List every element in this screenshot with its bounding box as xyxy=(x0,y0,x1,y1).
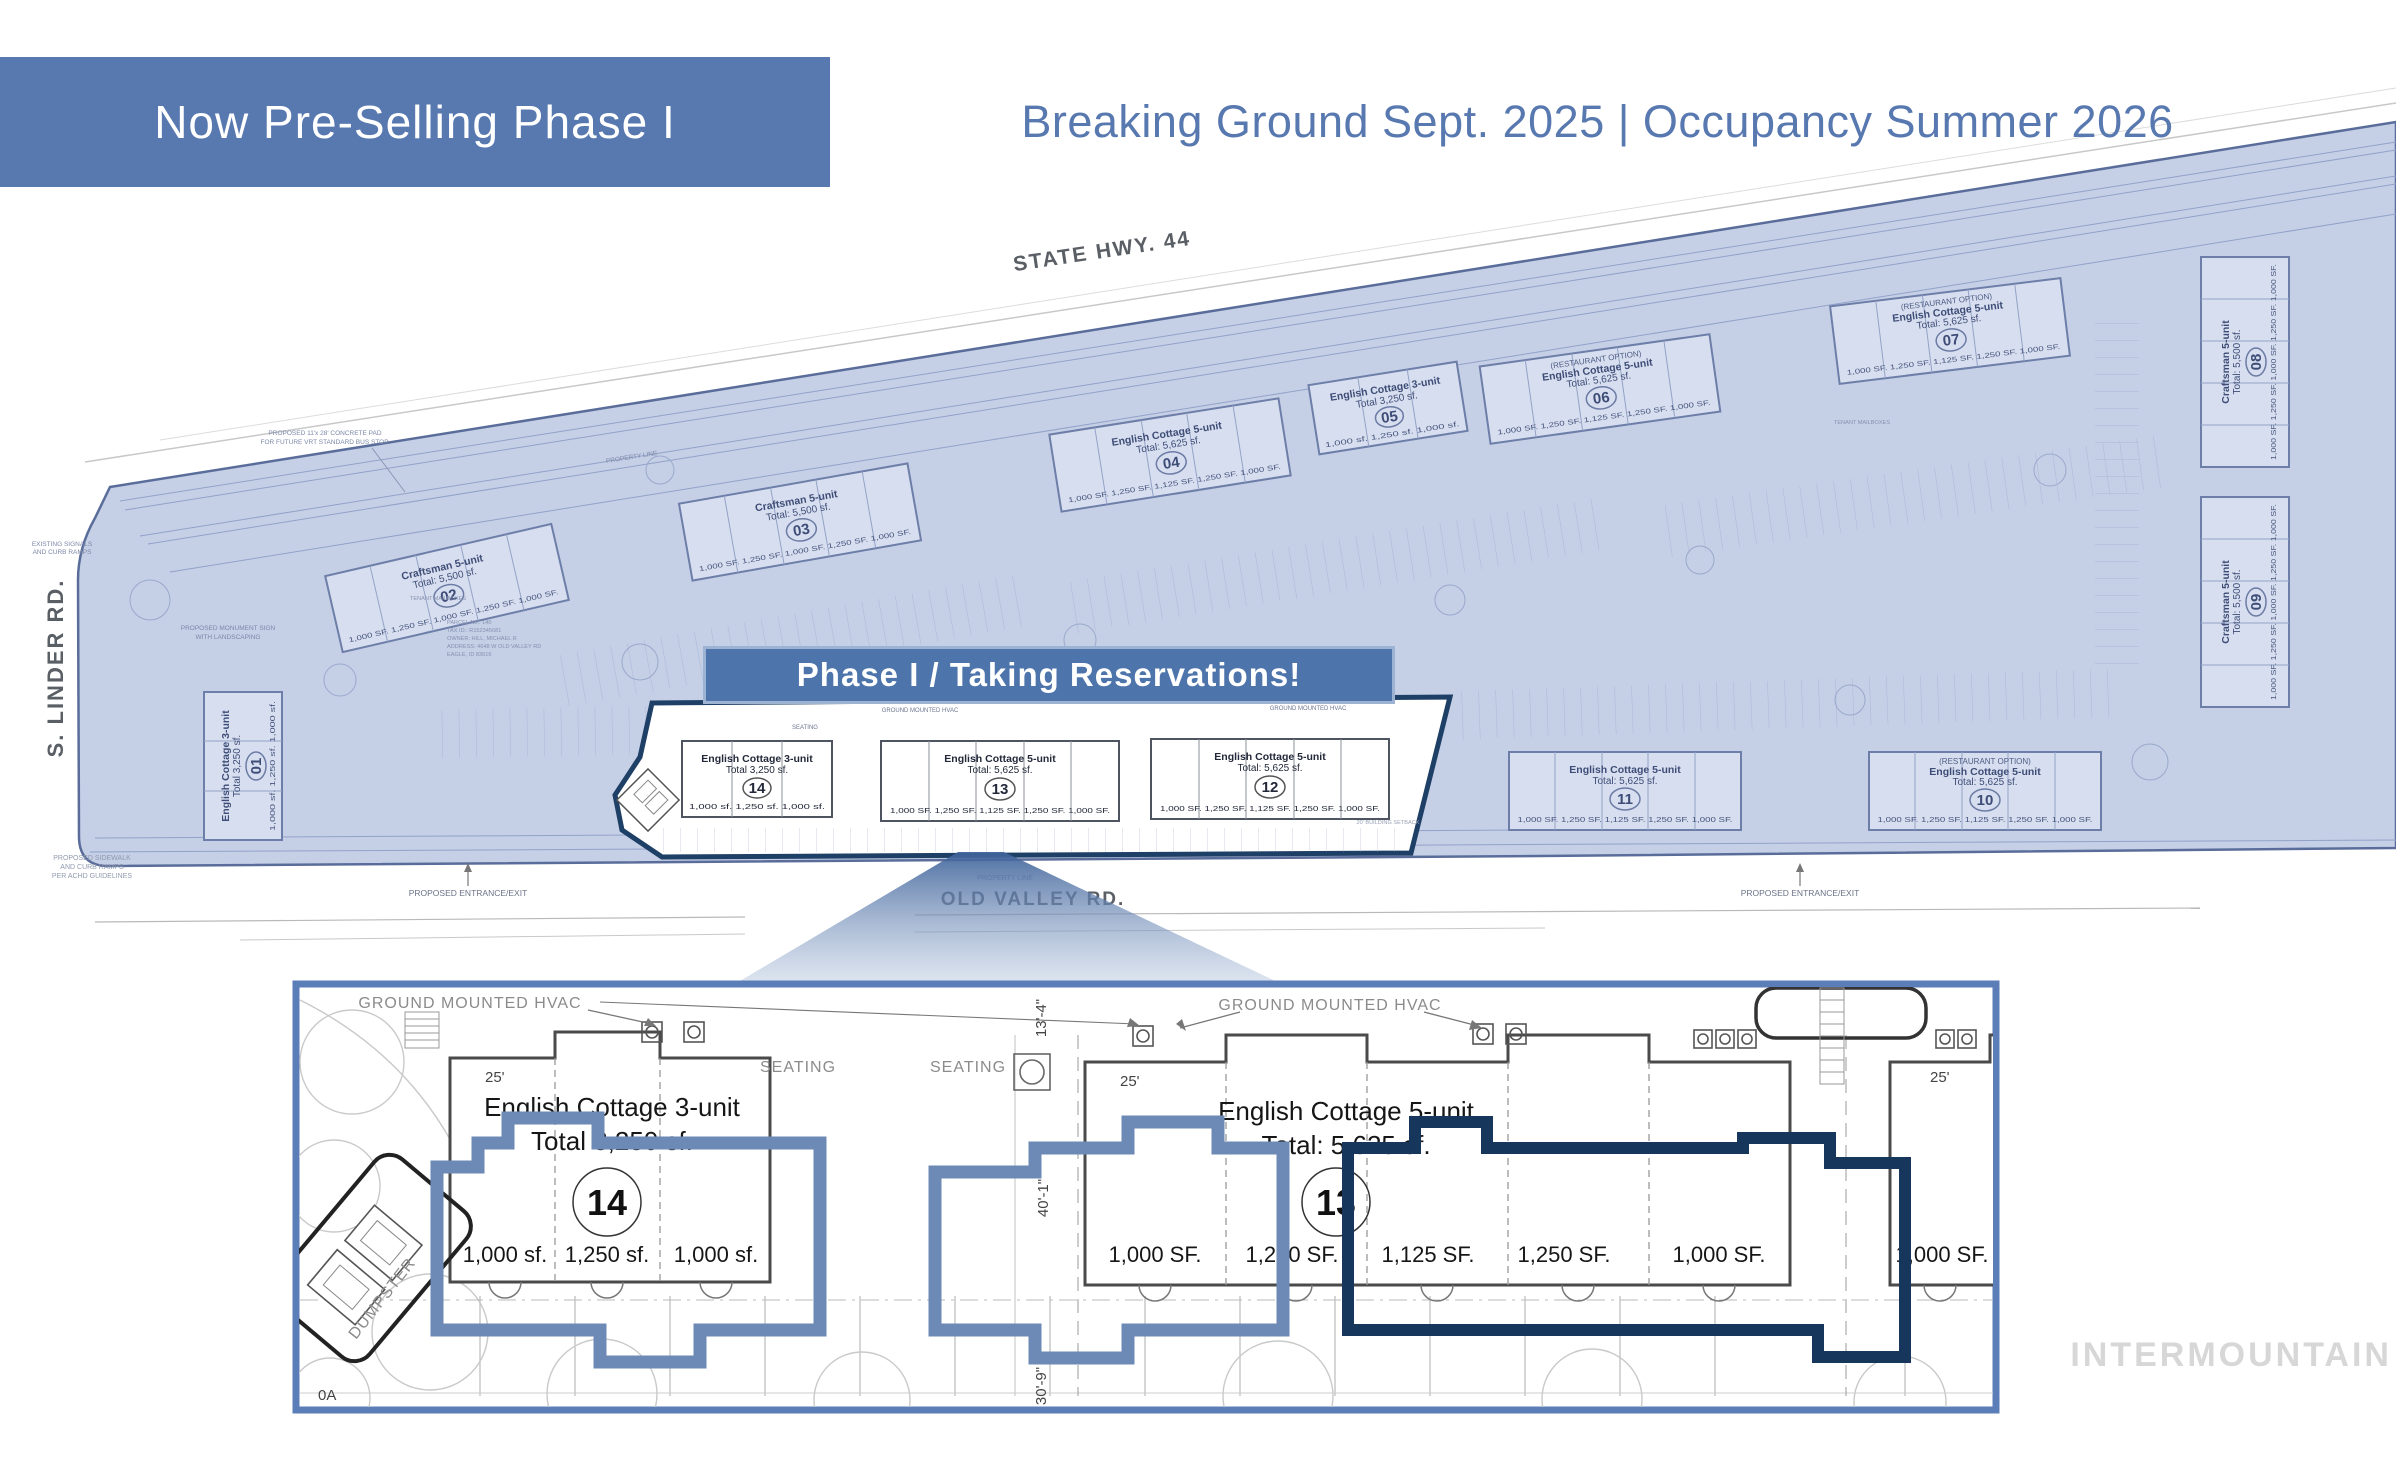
svg-text:1,000 SF.: 1,000 SF. xyxy=(1109,1242,1202,1267)
watermark: INTERMOUNTAIN xyxy=(2070,1336,2392,1374)
svg-text:EXISTING SIGNALS: EXISTING SIGNALS xyxy=(32,541,93,548)
svg-text:OWNER: HILL, MICHAEL R: OWNER: HILL, MICHAEL R xyxy=(447,636,517,642)
building-12: English Cottage 5-unit Total: 5,625 sf. … xyxy=(1151,739,1389,819)
svg-text:1,000 SF. 1,250 SF. 1,125 SF: 1,000 SF. 1,250 SF. 1,125 SF. 1,250 SF. … xyxy=(1160,806,1380,813)
svg-text:TAX ID.: R152345681: TAX ID.: R152345681 xyxy=(447,628,501,634)
svg-text:Total: 5,500 sf.: Total: 5,500 sf. xyxy=(2232,329,2243,394)
schedule-text: Breaking Ground Sept. 2025 | Occupancy S… xyxy=(1021,96,2173,148)
svg-text:25': 25' xyxy=(1120,1073,1140,1090)
linder-rd-label: S. LINDER RD. xyxy=(43,579,68,758)
detail-building-13: 25' English Cottage 5-unit Total: 5,625 … xyxy=(1085,1035,1790,1301)
phase-1-parking xyxy=(660,828,1400,852)
detail-building-14: 25' English Cottage 3-unit Total 3,250 s… xyxy=(450,1032,770,1298)
svg-text:1,000 sf.: 1,000 sf. xyxy=(674,1242,758,1267)
svg-text:English Cottage 5-unit: English Cottage 5-unit xyxy=(944,753,1056,765)
preselling-banner-label: Now Pre-Selling Phase I xyxy=(154,95,676,149)
setback-note: 20' BUILDING SETBACK xyxy=(1357,820,1420,826)
svg-text:25': 25' xyxy=(485,1069,505,1086)
svg-text:AND CURB RAMPS: AND CURB RAMPS xyxy=(33,549,93,556)
svg-text:01: 01 xyxy=(248,758,265,775)
svg-text:1,250 SF.: 1,250 SF. xyxy=(1246,1242,1339,1267)
detail-building-12: 25' 1,000 SF. xyxy=(1890,1035,2040,1301)
svg-text:PROPOSED 11'x 28' CONCRETE PAD: PROPOSED 11'x 28' CONCRETE PAD xyxy=(268,430,381,437)
svg-text:Craftsman 5-unit: Craftsman 5-unit xyxy=(2220,320,2232,404)
svg-text:AND CURB RAMPS: AND CURB RAMPS xyxy=(60,864,124,871)
dim-30-9: 30'-9" xyxy=(1033,1367,1050,1405)
svg-text:1,000 SF. 1,250 SF. 1,125 SF: 1,000 SF. 1,250 SF. 1,125 SF. 1,250 SF. … xyxy=(1518,817,1733,824)
detail-corner-label: 0A xyxy=(318,1387,336,1404)
svg-text:10: 10 xyxy=(1977,792,1994,809)
svg-text:English Cottage 3-unit: English Cottage 3-unit xyxy=(220,710,232,822)
svg-text:1,000 SF. 1,250 SF. 1,000 SF: 1,000 SF. 1,250 SF. 1,000 SF. 1,250 SF. … xyxy=(2271,264,2278,460)
svg-text:08: 08 xyxy=(2248,354,2265,371)
svg-text:Total: 5,500 sf.: Total: 5,500 sf. xyxy=(2232,569,2243,634)
building-10: (RESTAURANT OPTION) English Cottage 5-un… xyxy=(1869,752,2101,830)
svg-text:PROPOSED ENTRANCE/EXIT: PROPOSED ENTRANCE/EXIT xyxy=(1741,888,1860,898)
svg-text:05: 05 xyxy=(1380,408,1399,427)
svg-text:09: 09 xyxy=(2248,594,2265,611)
svg-text:ADDRESS: 4648 W OLD VALLEY RD: ADDRESS: 4648 W OLD VALLEY RD xyxy=(447,644,541,650)
svg-text:1,000 SF. 1,250 SF. 1,000 SF: 1,000 SF. 1,250 SF. 1,000 SF. 1,250 SF. … xyxy=(2271,504,2278,700)
svg-text:PARCEL No.: 140: PARCEL No.: 140 xyxy=(447,620,491,626)
svg-text:PER ACHD GUIDELINES: PER ACHD GUIDELINES xyxy=(52,873,132,880)
svg-text:03: 03 xyxy=(792,521,811,541)
building-09: Craftsman 5-unit Total: 5,500 sf. 09 1,0… xyxy=(2201,497,2289,707)
svg-text:Total 3,250 sf.: Total 3,250 sf. xyxy=(726,765,788,776)
svg-text:14: 14 xyxy=(749,780,766,797)
svg-text:English Cottage 3-unit: English Cottage 3-unit xyxy=(701,753,813,765)
seating-label-2: SEATING xyxy=(930,1059,1006,1076)
svg-text:25': 25' xyxy=(1930,1069,1950,1086)
svg-text:Total 3,250 sf.: Total 3,250 sf. xyxy=(232,735,243,797)
svg-text:WITH LANDSCAPING: WITH LANDSCAPING xyxy=(195,634,260,641)
svg-text:1,000 sf. 1,250 sf. 1,000 sf: 1,000 sf. 1,250 sf. 1,000 sf. xyxy=(689,804,825,811)
hvac-label-right: GROUND MOUNTED HVAC xyxy=(1218,997,1441,1014)
marketing-site-plan: English Cottage 3-unit Total 3,250 sf. 0… xyxy=(0,0,2396,1458)
svg-text:06: 06 xyxy=(1592,389,1611,408)
svg-text:PROPOSED MONUMENT SIGN: PROPOSED MONUMENT SIGN xyxy=(181,625,276,632)
phase-1-banner: Phase I / Taking Reservations! xyxy=(703,646,1395,704)
dim-40-1: 40'-1" xyxy=(1035,1179,1052,1217)
state-hwy-label: STATE HWY. 44 xyxy=(1012,227,1193,276)
svg-text:1,000 SF. 1,250 SF. 1,125 SF: 1,000 SF. 1,250 SF. 1,125 SF. 1,250 SF. … xyxy=(1878,817,2093,824)
schedule-headline: Breaking Ground Sept. 2025 | Occupancy S… xyxy=(845,72,2350,172)
svg-text:(RESTAURANT OPTION): (RESTAURANT OPTION) xyxy=(1939,757,2031,766)
svg-text:12: 12 xyxy=(1262,779,1279,796)
svg-text:TENANT MAILBOXES: TENANT MAILBOXES xyxy=(1834,420,1890,426)
svg-text:04: 04 xyxy=(1162,454,1182,474)
svg-text:11: 11 xyxy=(1617,791,1633,808)
svg-text:1,000 SF.: 1,000 SF. xyxy=(1673,1242,1766,1267)
dim-13-4: 13'-4" xyxy=(1033,999,1050,1037)
svg-text:FOR FUTURE VRT STANDARD BUS ST: FOR FUTURE VRT STANDARD BUS STOP. xyxy=(260,439,389,446)
svg-text:PROPOSED ENTRANCE/EXIT: PROPOSED ENTRANCE/EXIT xyxy=(409,888,528,898)
hvac-note-left: GROUND MOUNTED HVAC xyxy=(882,708,959,714)
svg-text:Craftsman 5-unit: Craftsman 5-unit xyxy=(2220,560,2232,644)
svg-text:14: 14 xyxy=(587,1182,627,1223)
entrance-labels: PROPOSED ENTRANCE/EXIT PROPOSED ENTRANCE… xyxy=(409,863,1860,898)
preselling-banner: Now Pre-Selling Phase I xyxy=(0,57,830,187)
svg-text:PROPOSED SIDEWALK: PROPOSED SIDEWALK xyxy=(53,855,131,862)
svg-text:Total: 5,625 sf.: Total: 5,625 sf. xyxy=(967,765,1032,776)
hvac-note-right: GROUND MOUNTED HVAC xyxy=(1270,706,1347,712)
seating-note: SEATING xyxy=(792,725,818,731)
svg-text:Total: 5,625 sf.: Total: 5,625 sf. xyxy=(1952,777,2017,788)
svg-text:07: 07 xyxy=(1942,331,1961,350)
seating-label-1: SEATING xyxy=(760,1059,836,1076)
building-08: Craftsman 5-unit Total: 5,500 sf. 08 1,0… xyxy=(2201,257,2289,467)
svg-text:EAGLE, ID 83616: EAGLE, ID 83616 xyxy=(447,652,491,658)
building-14: English Cottage 3-unit Total 3,250 sf. 1… xyxy=(682,741,832,817)
building-11: English Cottage 5-unit Total: 5,625 sf. … xyxy=(1509,752,1741,830)
svg-text:Total: 5,625 sf.: Total: 5,625 sf. xyxy=(1592,776,1657,787)
svg-text:English Cottage 5-unit: English Cottage 5-unit xyxy=(1214,751,1326,763)
svg-text:1,125 SF.: 1,125 SF. xyxy=(1382,1242,1475,1267)
svg-text:1,250 SF.: 1,250 SF. xyxy=(1518,1242,1611,1267)
building-01: English Cottage 3-unit Total 3,250 sf. 0… xyxy=(204,692,282,840)
building-13: English Cottage 5-unit Total: 5,625 sf. … xyxy=(881,741,1119,821)
svg-text:English Cottage 5-unit: English Cottage 5-unit xyxy=(1569,764,1681,776)
phase-1-banner-label: Phase I / Taking Reservations! xyxy=(797,656,1301,694)
svg-text:Total: 5,625 sf.: Total: 5,625 sf. xyxy=(1237,763,1302,774)
site-plan-canvas: English Cottage 3-unit Total 3,250 sf. 0… xyxy=(0,0,2396,1458)
svg-text:1,000 SF. 1,250 SF. 1,125 SF: 1,000 SF. 1,250 SF. 1,125 SF. 1,250 SF. … xyxy=(890,808,1110,815)
svg-text:13: 13 xyxy=(992,781,1009,798)
svg-text:1,000 sf. 1,250 sf. 1,000 sf: 1,000 sf. 1,250 sf. 1,000 sf. xyxy=(270,701,277,831)
svg-text:1,000 sf.: 1,000 sf. xyxy=(463,1242,547,1267)
hvac-label-left: GROUND MOUNTED HVAC xyxy=(358,995,581,1012)
zoom-callout-beam xyxy=(728,852,1290,988)
svg-text:TENANT MAILBOXES: TENANT MAILBOXES xyxy=(410,596,466,602)
svg-text:1,250 sf.: 1,250 sf. xyxy=(565,1242,649,1267)
